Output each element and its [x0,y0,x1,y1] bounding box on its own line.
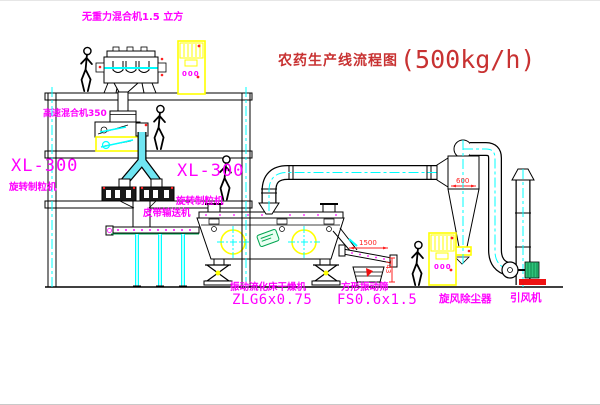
fluid-bed-dryer [197,204,357,285]
label-belt-conveyor: 皮带输送机 [143,209,191,219]
diagram-title: 农药生产线流程图 (500kg/h) [278,45,535,74]
belt-conveyor [106,226,199,286]
label-screen-model: FS0.6x1.5 [337,293,417,307]
granulator-left [102,179,136,201]
dimension-screen-height: 743 [384,260,391,273]
exhaust-duct [259,165,443,214]
label-fan: 引风机 [510,293,542,304]
label-granulator-right-name: 旋转制粒机 [176,197,224,207]
flow-diagram-canvas: 农药生产线流程图 (500kg/h) 无重力混合机1.5 立方 高速混合机350… [0,0,600,405]
label-granulator-right-model: XL-300 [177,163,244,180]
worker-figure [154,105,165,149]
worker-figure [412,241,423,285]
dimension-cyclone-width: 600 [456,178,469,185]
control-cabinet-lower [429,233,456,285]
title-text: 农药生产线流程图 [278,50,398,70]
cabinet-upper-display: 000 [182,71,200,78]
label-high-speed-mixer: 高速混合机350 [43,110,107,119]
worker-figure [81,47,92,91]
cabinet-lower-display: 000 [434,264,452,271]
label-granulator-left-model: XL-300 [11,158,78,175]
conveyor-legs [133,234,187,286]
label-cyclone: 旋风除尘器 [439,294,492,305]
granulator-right [140,179,174,201]
label-gravity-mixer: 无重力混合机1.5 立方 [82,13,183,23]
label-dryer-model: ZLG6x0.75 [232,293,312,307]
gravity-mixer [96,47,166,112]
control-cabinet-upper [178,41,205,94]
title-capacity: (500kg/h) [400,45,535,74]
dimension-screen-length: 1500 [359,240,377,247]
label-granulator-left-name: 旋转制粒机 [9,183,57,193]
